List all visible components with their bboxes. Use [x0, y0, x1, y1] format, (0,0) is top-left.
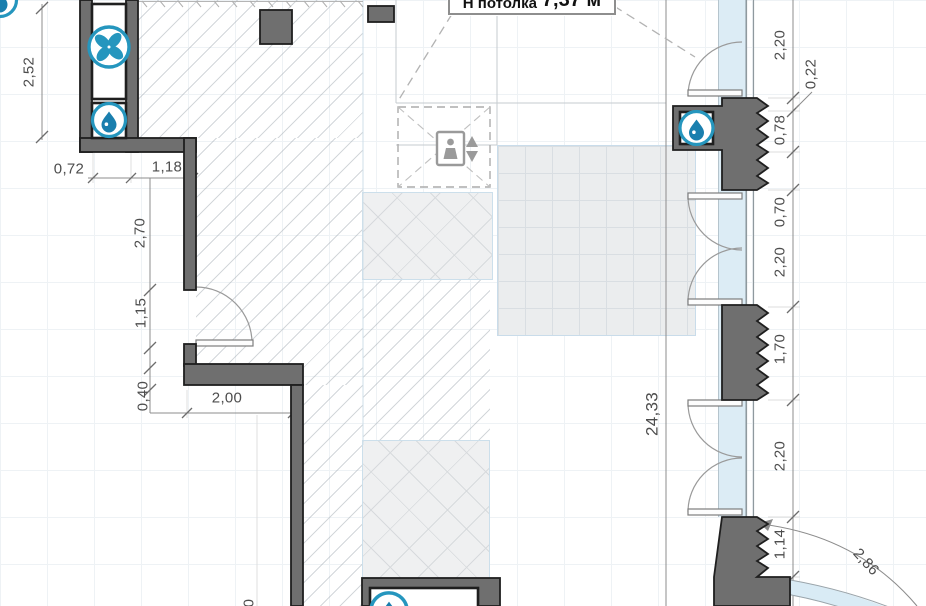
- dim-door-left: 1,15: [134, 298, 149, 328]
- dim-total-height: 24,33: [644, 392, 661, 436]
- curved-glazing: [775, 578, 920, 606]
- elevator-person-head: [447, 139, 454, 146]
- walls: [80, 0, 790, 606]
- dim-shaft-height: 2,52: [22, 57, 37, 87]
- ceiling-height-value: 7,37 м: [542, 0, 601, 12]
- dim-room-width: 2,00: [212, 391, 242, 406]
- dim-wall-thick: 0,40: [136, 381, 151, 411]
- pier-mid-insulated: [722, 305, 768, 400]
- horizontal-wall: [184, 364, 303, 385]
- elevator-down-arrow-icon: [466, 151, 478, 162]
- window-frame-lines: [747, 0, 754, 577]
- void-boundary: [396, 0, 666, 145]
- dim-pier-low: 1,14: [773, 529, 788, 559]
- dim-shaft-width: 0,72: [54, 162, 84, 177]
- shaft-bottom-wall: [80, 138, 196, 152]
- floor-plan: Н потолка 7,37 м 2,52 0,72 1,18 2,70 1,1…: [0, 0, 926, 606]
- fan-icon: [89, 27, 129, 67]
- double-height-void-rays: [398, 6, 695, 101]
- elevator-icon: [437, 132, 478, 165]
- dim-win-small: 0,22: [804, 59, 819, 89]
- lower-vertical-wall: [291, 385, 303, 606]
- dim-pier-a2: 0,70: [773, 197, 788, 227]
- shaft-right-wall: [126, 0, 138, 152]
- elevator-shaft: [398, 107, 490, 187]
- elevator-up-arrow-icon: [466, 136, 478, 147]
- dim-door-b: 2,20: [773, 441, 788, 471]
- dim-wall-upper: 2,70: [133, 218, 148, 248]
- dim-pier-mid: 1,70: [773, 334, 788, 364]
- shaft-left-wall: [80, 0, 92, 152]
- wall-stub: [184, 344, 196, 366]
- void-wall-stub: [368, 6, 394, 22]
- ceiling-height-label: Н потолка 7,37 м: [448, 0, 616, 15]
- extension-lines: [93, 98, 800, 606]
- upper-vertical-wall: [184, 138, 196, 290]
- ceiling-height-prefix: Н потолка: [463, 0, 537, 12]
- water-drop-icon-right: [680, 112, 713, 145]
- dim-door-a: 2,20: [773, 247, 788, 277]
- dim-wall-top: 1,18: [152, 160, 182, 175]
- water-drop-icon-left: [93, 104, 126, 137]
- dim-win-top: 2,20: [773, 30, 788, 60]
- column: [260, 10, 292, 44]
- dim-partial: 0: [242, 599, 257, 606]
- leader-line: [796, 92, 812, 108]
- door-arcs: [196, 42, 742, 512]
- dim-pier-a1: 0,78: [773, 115, 788, 145]
- service-fixtures: [0, 0, 713, 606]
- dimension-lines: [42, 0, 793, 606]
